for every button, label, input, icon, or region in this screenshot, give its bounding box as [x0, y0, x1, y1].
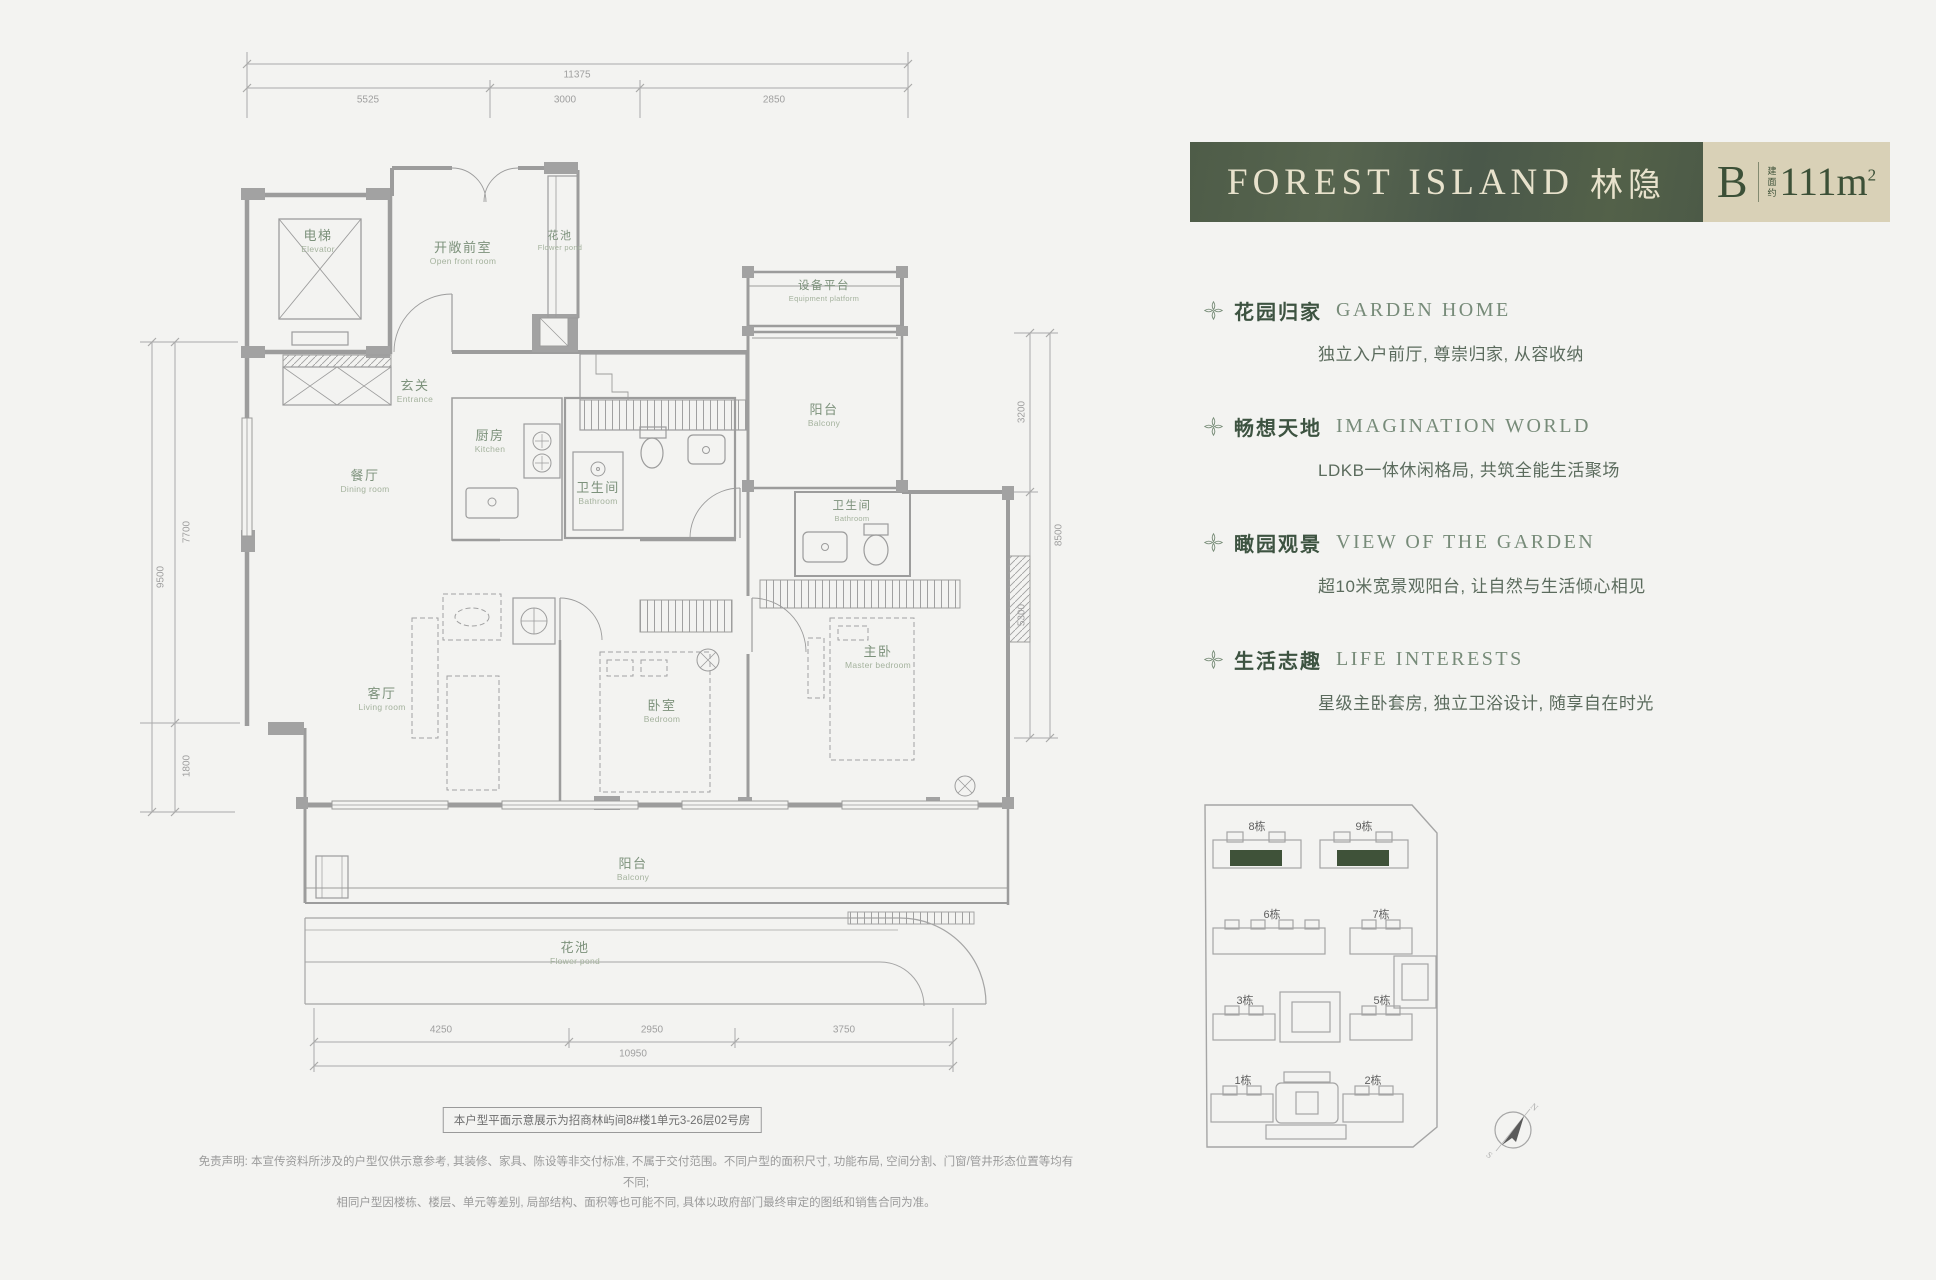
kitchen-details — [452, 398, 562, 540]
feature-life-interests: 生活志趣 LIFE INTERESTS 星级主卧套房, 独立卫浴设计, 随享自在… — [1203, 645, 1863, 714]
unit-letter: B — [1717, 159, 1748, 205]
flower-petal-icon — [1203, 649, 1224, 670]
unit-note-box: 本户型平面示意展示为招商林屿间8#楼1单元3-26层02号房 — [443, 1107, 762, 1133]
building-label-9: 9栋 — [1355, 818, 1372, 834]
dim-bottom-3: 3750 — [833, 1025, 855, 1036]
bedroom-details — [560, 598, 732, 792]
closet-details — [580, 354, 746, 430]
dim-bottom-total: 10950 — [619, 1049, 647, 1060]
building-label-8: 8栋 — [1248, 818, 1265, 834]
dim-left-total: 9500 — [156, 566, 167, 588]
livingroom-furniture — [412, 594, 501, 790]
room-label-elevator: 电梯Elevator — [301, 228, 335, 254]
siteplan-drawing — [1205, 805, 1437, 1147]
divider — [1758, 162, 1759, 202]
title-banner: FOREST ISLAND 林隐 — [1190, 142, 1703, 222]
disclaimer: 免责声明: 本宣传资料所涉及的户型仅供示意参考, 其装修、家具、陈设等非交付标准… — [196, 1152, 1076, 1214]
dim-right-1: 3200 — [1017, 401, 1028, 423]
dim-top-1: 5525 — [357, 95, 379, 106]
dim-top-2: 3000 — [554, 95, 576, 106]
fan-coil-unit — [513, 598, 555, 644]
room-label-living-room: 客厅Living room — [358, 686, 405, 712]
building-label-6: 6栋 — [1263, 906, 1280, 922]
feature-view-of-garden: 瞰园观景 VIEW OF THE GARDEN 超10米宽景观阳台, 让自然与生… — [1203, 528, 1863, 597]
room-label-master-bedroom: 主卧Master bedroom — [845, 644, 911, 670]
dim-top-total: 11375 — [563, 70, 590, 81]
dim-left-2: 1800 — [182, 755, 193, 777]
flower-petal-icon — [1203, 416, 1224, 437]
room-label-kitchen: 厨房Kitchen — [475, 428, 505, 454]
area-prefix-label: 建面约 — [1766, 166, 1776, 199]
room-label-balcony-bottom: 阳台Balcony — [617, 856, 649, 882]
elevator-details — [279, 219, 391, 405]
unit-area-badge: B 建面约 111m2 — [1703, 142, 1890, 222]
project-title-en: FOREST ISLAND — [1227, 161, 1574, 204]
room-label-entrance: 玄关Entrance — [397, 378, 433, 404]
room-label-bathroom-main: 卫生间Bathroom — [576, 480, 620, 506]
room-label-bedroom: 卧室Bedroom — [644, 698, 681, 724]
room-label-flowerpond-top: 花池Flower pond — [538, 230, 583, 252]
flowerpond-details — [305, 912, 986, 1006]
master-suite-details — [748, 286, 1030, 796]
building-label-7: 7栋 — [1372, 906, 1389, 922]
brochure-page: 电梯Elevator 开敞前室Open front room 花池Flower … — [0, 0, 1936, 1280]
area-value: 111m2 — [1779, 162, 1876, 202]
flower-petal-icon — [1203, 532, 1224, 553]
compass-icon — [1495, 1109, 1531, 1151]
disclaimer-line1: 免责声明: 本宣传资料所涉及的户型仅供示意参考, 其装修、家具、陈设等非交付标准… — [196, 1152, 1076, 1193]
building-label-2: 2栋 — [1364, 1072, 1381, 1088]
building-label-3: 3栋 — [1236, 992, 1253, 1008]
dim-bottom-1: 4250 — [430, 1025, 452, 1036]
room-label-equipment-platform: 设备平台Equipment platform — [789, 280, 859, 303]
dim-right-2: 5300 — [1017, 604, 1028, 626]
disclaimer-line2: 相同户型因楼栋、楼层、单元等差别, 局部结构、面积等也可能不同, 具体以政府部门… — [196, 1193, 1076, 1214]
room-label-balcony-top: 阳台Balcony — [808, 402, 840, 428]
dim-right-total: 8500 — [1054, 524, 1065, 546]
room-label-bathroom-master: 卫生间Bathroom — [833, 500, 872, 523]
room-label-flowerpond-bottom: 花池Flower pond — [550, 940, 600, 966]
feature-garden-home: 花园归家 GARDEN HOME 独立入户前厅, 尊崇归家, 从容收纳 — [1203, 296, 1863, 365]
room-label-open-front-room: 开敞前室Open front room — [430, 240, 496, 266]
dim-bottom-2: 2950 — [641, 1025, 663, 1036]
room-label-dining-room: 餐厅Dining room — [340, 468, 389, 494]
project-title-cn: 林隐 — [1590, 158, 1666, 206]
dim-left-1: 7700 — [182, 521, 193, 543]
flower-petal-icon — [1203, 300, 1224, 321]
feature-imagination-world: 畅想天地 IMAGINATION WORLD LDKB一体休闲格局, 共筑全能生… — [1203, 412, 1863, 481]
building-label-1: 1栋 — [1234, 1072, 1251, 1088]
building-label-5: 5栋 — [1373, 992, 1390, 1008]
dim-top-3: 2850 — [763, 95, 785, 106]
